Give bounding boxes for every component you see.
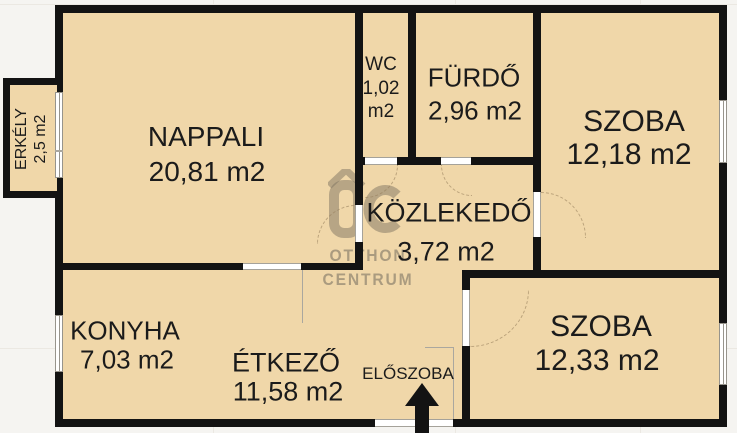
room-label-etkezo: ÉTKEZŐ bbox=[232, 348, 340, 379]
room-label-konyha: KONYHA bbox=[70, 316, 180, 347]
wall-szoba-divider bbox=[462, 270, 727, 278]
entrance-arrow-head bbox=[405, 383, 439, 406]
room-label-szoba2: SZOBA bbox=[550, 310, 652, 344]
room-area-szoba1: 12,18 m2 bbox=[566, 138, 691, 172]
room-area-etkezo: 11,58 m2 bbox=[233, 377, 344, 408]
wall-szoba1-left bbox=[533, 13, 541, 278]
room-area-kozlekedo: 3,72 m2 bbox=[397, 237, 495, 268]
divider-konyha-etkezo bbox=[302, 265, 303, 323]
room-label-nappali: NAPPALI bbox=[148, 121, 264, 153]
wall-wc-right bbox=[408, 13, 416, 161]
room-area-konyha: 7,03 m2 bbox=[80, 345, 174, 376]
window-balcony-divider bbox=[55, 150, 63, 152]
divider-eloszoba-h bbox=[425, 347, 453, 348]
wall-nappali-bottom bbox=[55, 263, 362, 270]
room-area-furdo: 2,96 m2 bbox=[428, 96, 522, 127]
room-label-szoba1: SZOBA bbox=[583, 105, 685, 139]
window-szoba2 bbox=[719, 323, 727, 385]
room-label-erkely: ERKÉLY 2,5 m2 bbox=[12, 108, 50, 170]
room-area-nappali: 20,81 m2 bbox=[149, 156, 266, 188]
door-szoba2 bbox=[462, 290, 470, 346]
door-furdo bbox=[441, 157, 471, 165]
room-label-eloszoba: ELŐSZOBA bbox=[362, 364, 454, 384]
room-area-wc-1: 1,02 bbox=[363, 78, 400, 100]
floor-plan-canvas: OTTHON CENTRUM NAPPALI 20,81 m2 WC 1,02 … bbox=[0, 0, 737, 433]
room-area-wc-2: m2 bbox=[368, 101, 394, 123]
room-area-szoba2: 12,33 m2 bbox=[534, 344, 659, 378]
door-szoba1 bbox=[533, 192, 541, 237]
door-nappali bbox=[355, 205, 363, 242]
entrance-arrow-shaft bbox=[415, 404, 429, 433]
watermark-line2: CENTRUM bbox=[322, 270, 413, 290]
door-entrance bbox=[375, 419, 453, 427]
window-szoba1 bbox=[719, 100, 727, 163]
room-label-kozlekedo: KÖZLEKEDŐ bbox=[366, 198, 531, 229]
erkely-area: 2,5 m2 bbox=[31, 108, 50, 170]
room-label-furdo: FÜRDŐ bbox=[428, 63, 520, 94]
room-label-wc: WC bbox=[365, 54, 397, 76]
door-wc bbox=[365, 157, 397, 165]
opening-nappali-etkezo bbox=[243, 263, 301, 270]
window-balcony bbox=[55, 92, 63, 178]
window-konyha bbox=[55, 315, 63, 372]
erkely-name: ERKÉLY bbox=[12, 108, 31, 170]
